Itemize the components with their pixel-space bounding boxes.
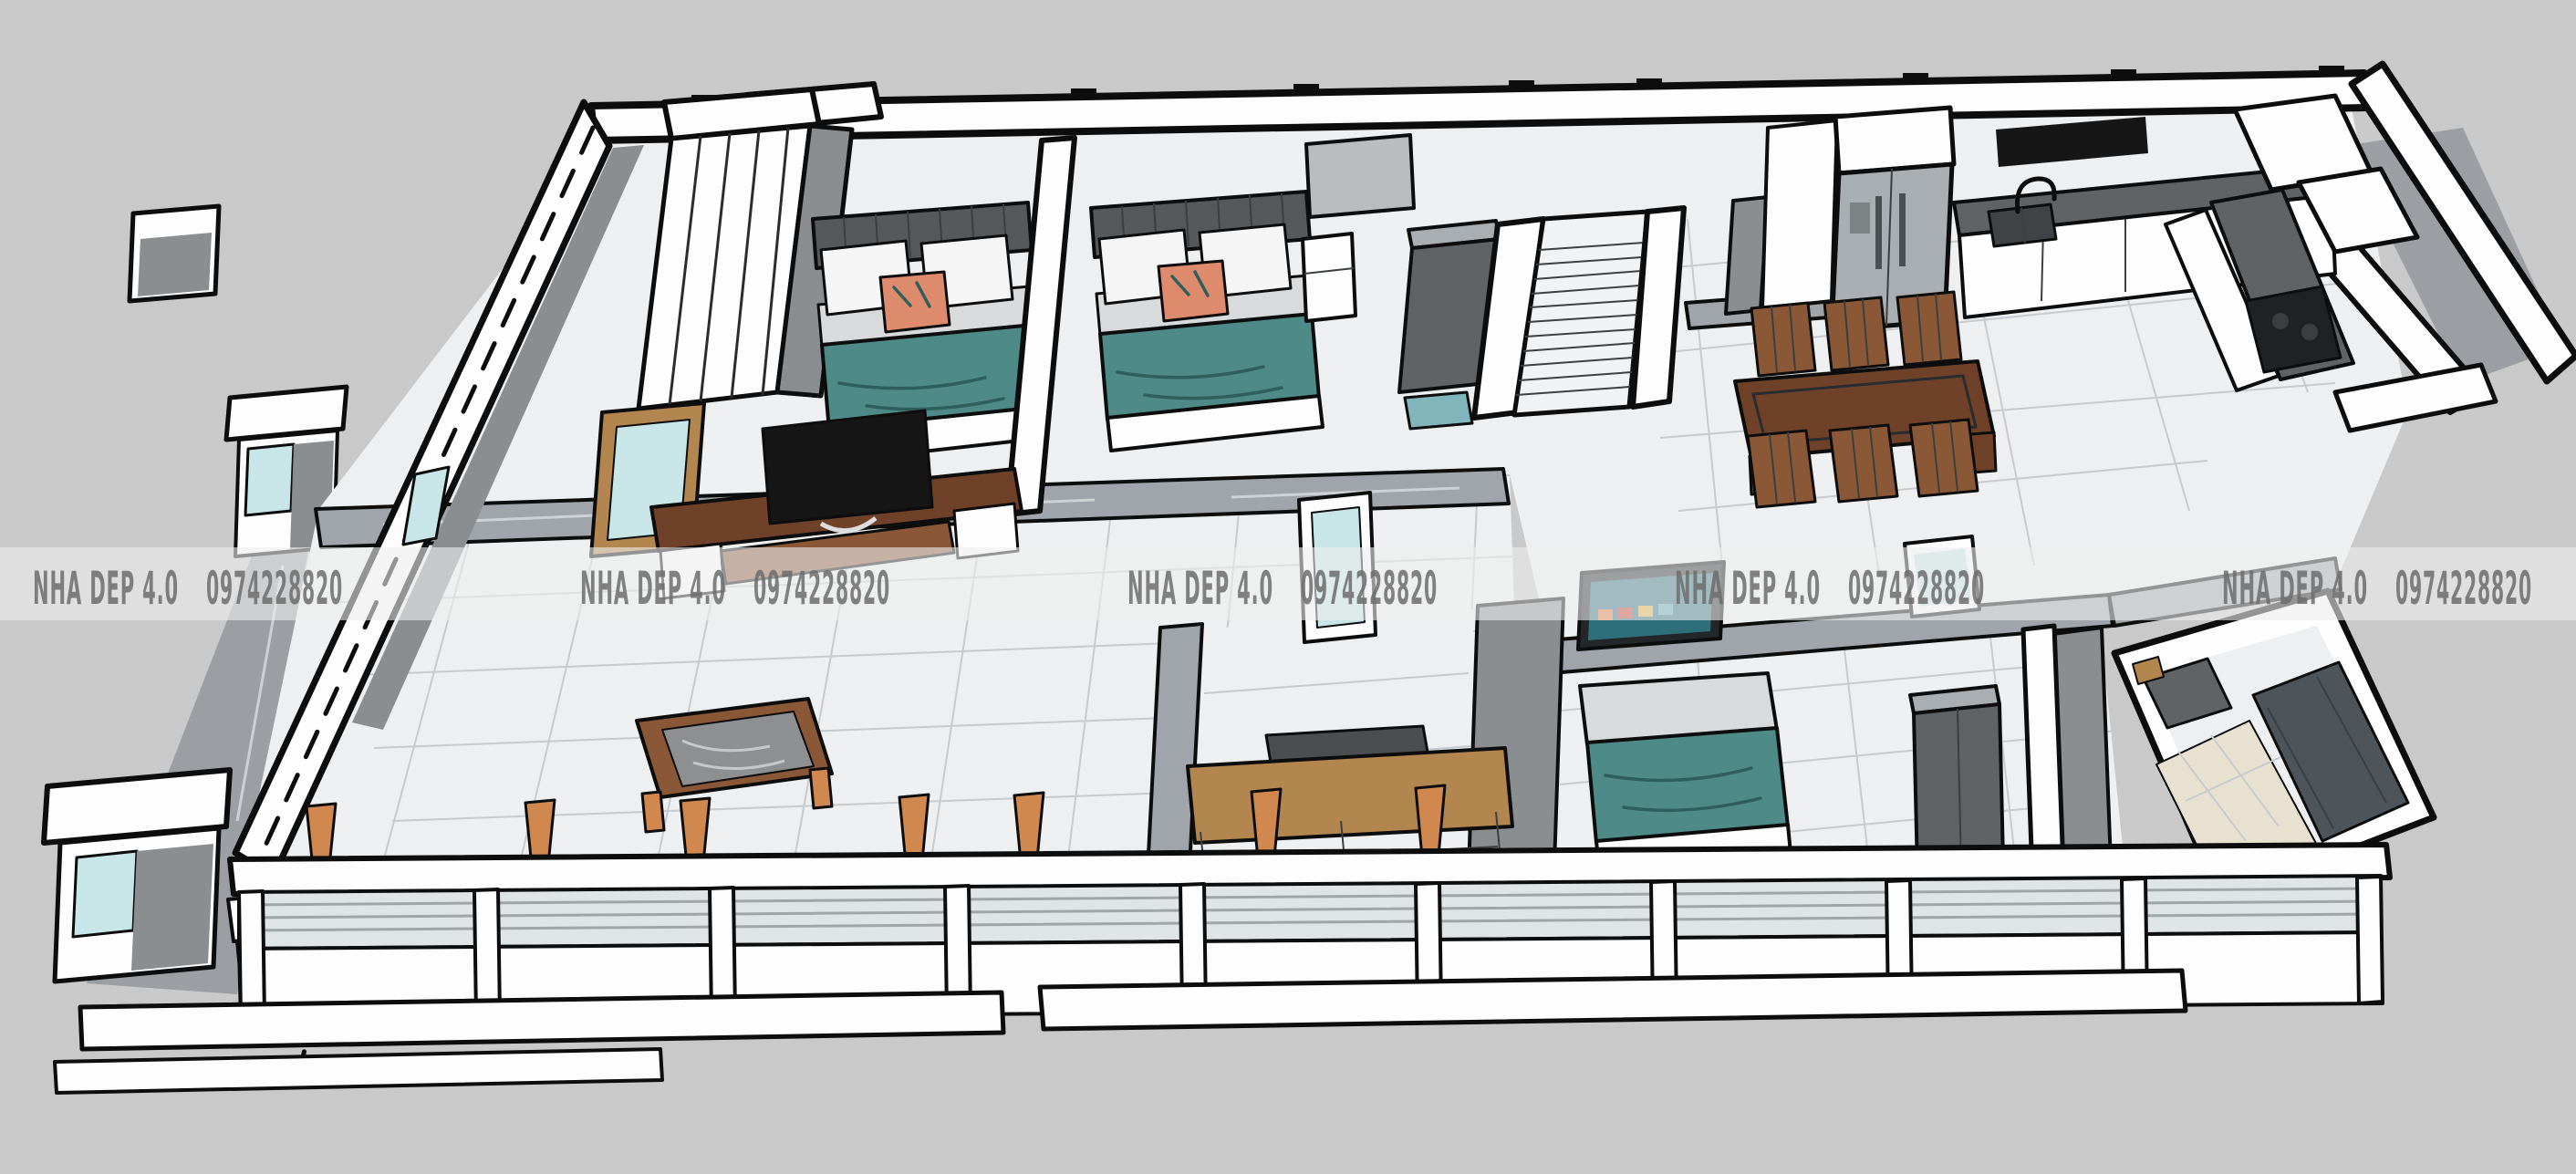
watermark-band <box>0 547 2576 620</box>
watermark-brand-text: NHA DEP 4.0 <box>580 562 726 615</box>
bath-partition <box>2023 626 2063 874</box>
accent-pillow <box>880 272 950 332</box>
watermark-brand-text: NHA DEP 4.0 <box>2222 562 2368 615</box>
watermark-brand-text: NHA DEP 4.0 <box>33 562 179 615</box>
table-leg <box>642 792 664 832</box>
chair-row-back <box>1751 292 1961 376</box>
dark-wardrobe <box>1910 686 2003 872</box>
watermark-phone-text: 0974228820 <box>1301 562 1438 615</box>
nightstand <box>1303 234 1356 321</box>
floorplan-render: NHA DEP 4.0 0974228820 NHA DEP 4.0 09742… <box>0 0 2576 1174</box>
watermark-phone-text: 0974228820 <box>753 562 890 615</box>
tall-cabinet <box>1762 120 1837 308</box>
table-leg <box>810 768 832 808</box>
television <box>763 410 932 524</box>
watermark-brand-text: NHA DEP 4.0 <box>1675 562 1821 615</box>
accent-pillow <box>1158 261 1228 321</box>
watermark-phone-text: 0974228820 <box>1848 562 1985 615</box>
fridge-dispenser <box>1850 203 1870 234</box>
gate-pillar-top <box>130 206 219 301</box>
watermark: NHA DEP 4.0 0974228820 NHA DEP 4.0 09742… <box>0 547 2576 620</box>
watermark-phone-text: 0974228820 <box>206 562 343 615</box>
bed <box>1091 192 1323 451</box>
dining-area <box>1735 292 1996 507</box>
pillar-lamp <box>245 444 294 515</box>
teal-doormat <box>1405 392 1472 429</box>
watermark-brand-text: NHA DEP 4.0 <box>1127 562 1273 615</box>
study-wall-right <box>1469 598 1563 872</box>
cooktop <box>2246 286 2341 372</box>
pillar-lamp <box>73 851 137 937</box>
cabinet <box>1306 135 1414 217</box>
watermark-phone-text: 0974228820 <box>2395 562 2532 615</box>
gate-pillar-bottom <box>44 770 230 982</box>
chair-row-front <box>1748 420 1978 507</box>
